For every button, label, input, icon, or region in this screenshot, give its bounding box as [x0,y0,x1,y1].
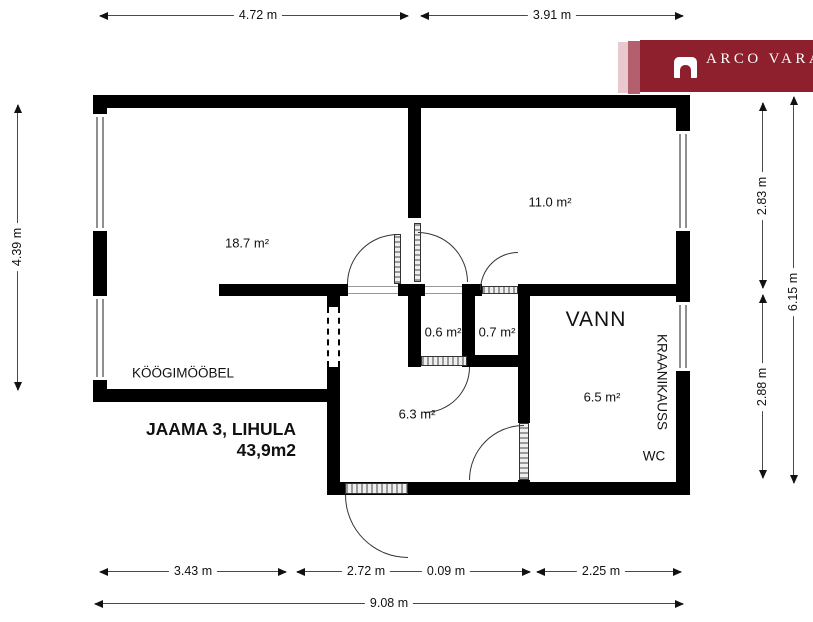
door-arc-closet-right [480,252,518,290]
dim-label-bottom-mid: 2.72 m [342,564,390,578]
wc-label: WC [643,449,666,464]
room-area-hall: 6.3 m² [399,407,436,422]
room-area-closet-right: 0.7 m² [479,325,516,340]
window-bathroom [676,302,690,371]
wall-right-bottom [676,371,690,495]
dim-label-right-upper: 2.83 m [755,172,769,220]
dim-label-bottom-total: 9.08 m [365,596,413,610]
dim-label-right-total: 6.15 m [786,268,800,316]
wall-closet-bottom-b [467,355,530,367]
door-arc-bathroom [469,425,524,480]
wall-top [93,95,690,108]
kitchen-furniture-label: KÖÖGIMÖÖBEL [132,366,234,381]
logo-background: ARCO VARA [640,40,813,92]
door-leaf-entrance [345,483,408,494]
arco-vara-logo: ARCO VARA [618,40,813,95]
door-arc-living [347,234,398,284]
door-arc-entrance [345,495,408,558]
window-left-upper [93,114,107,231]
room-area-living: 18.7 m² [225,236,269,251]
wall-kitchen-hall-upper [327,284,340,307]
plan-title: JAAMA 3, LIHULA 43,9m2 [128,419,296,462]
bath-label: VANN [566,308,627,332]
logo-stripe-light [618,42,628,93]
dim-label-bottom-left: 3.43 m [169,564,217,578]
wall-room-divider [408,107,421,218]
opening-dashed-kitchen [327,307,340,367]
room-area-closet-left: 0.6 m² [425,325,462,340]
wall-left-corner [93,95,107,114]
wall-kitchen-bottom [93,389,340,402]
dim-line-bottom-mid [297,571,530,572]
door-arc-bedroom [418,232,468,282]
dim-label-top-right: 3.91 m [528,8,576,22]
floorplan-canvas: 18.7 m² 11.0 m² 0.6 m² 0.7 m² 6.3 m² 6.5… [0,0,813,622]
plan-title-area: 43,9m2 [128,440,296,461]
room-area-bedroom: 11.0 m² [528,195,571,210]
room-area-bathroom: 6.5 m² [584,390,621,405]
door-threshold-living [348,286,398,294]
window-right-upper [676,131,690,231]
window-left-lower [93,296,107,380]
dim-label-top-left: 4.72 m [234,8,282,22]
logo-brand-text: ARCO VARA [706,51,813,68]
door-leaf-closet-left [421,356,467,366]
sink-label: KRAANIKAUSS [655,334,670,430]
dim-label-left: 4.39 m [10,223,24,271]
wall-central-b [398,284,425,296]
wall-left-mid [93,231,107,296]
wall-kitchen-hall-lower [327,367,340,495]
wall-central-c [462,284,482,296]
wall-bathroom-top [518,284,690,296]
arco-vara-arch-icon [674,57,697,78]
door-threshold-bedroom [425,286,462,294]
wall-right-corner [676,95,690,131]
plan-title-address: JAAMA 3, LIHULA [128,419,296,440]
logo-stripe-mid [628,41,640,94]
dim-label-right-lower: 2.88 m [755,363,769,411]
arch-door-shape [680,65,691,78]
wall-bathroom-left-stub [518,480,530,495]
dim-label-bottom-right: 2.25 m [577,564,625,578]
dim-label-bottom-small: 0.09 m [422,564,470,578]
wall-closet-bottom-a [408,355,421,367]
